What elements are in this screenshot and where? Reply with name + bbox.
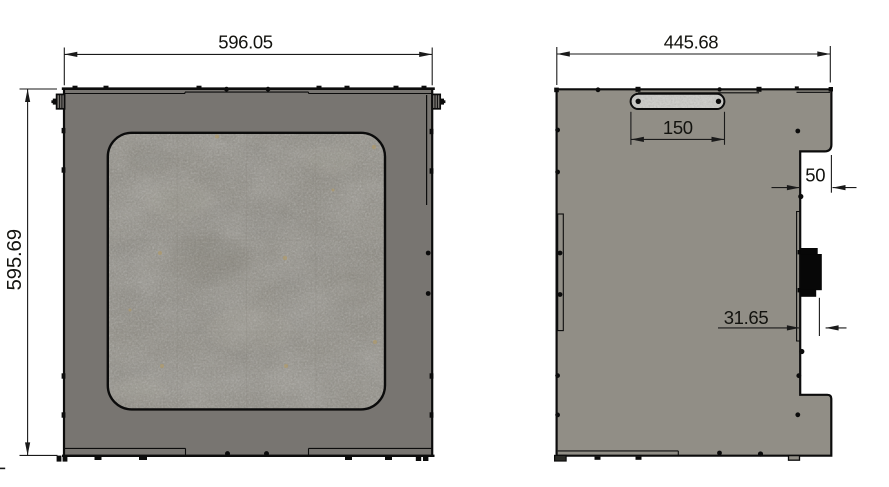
svg-text:445.68: 445.68 (664, 31, 719, 52)
svg-text:596.05: 596.05 (218, 32, 273, 53)
svg-text:150: 150 (663, 117, 693, 138)
svg-text:50: 50 (805, 165, 825, 186)
svg-text:31.65: 31.65 (724, 307, 769, 328)
svg-text:595.69: 595.69 (3, 229, 26, 291)
